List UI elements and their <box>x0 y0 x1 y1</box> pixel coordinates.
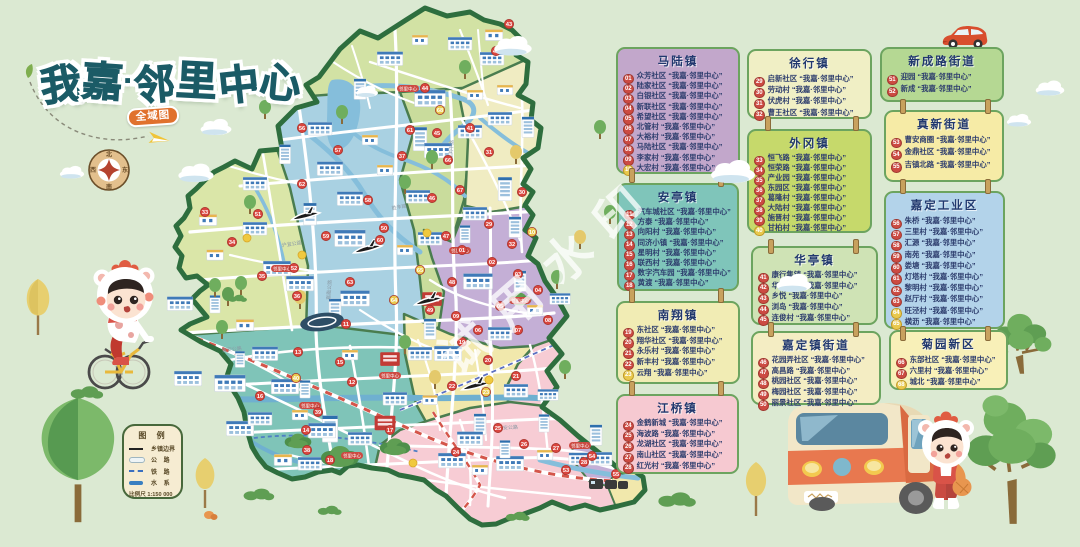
svg-text:57: 57 <box>335 148 341 154</box>
svg-text:14: 14 <box>303 428 310 434</box>
svg-text:东: 东 <box>122 166 128 174</box>
svg-text:67: 67 <box>457 188 463 194</box>
svg-text:45: 45 <box>434 131 440 137</box>
svg-text:41: 41 <box>467 126 473 132</box>
svg-text:40: 40 <box>293 376 299 382</box>
svg-text:04: 04 <box>535 288 542 294</box>
svg-text:19: 19 <box>459 340 465 346</box>
svg-text:36: 36 <box>294 294 300 300</box>
svg-text:22: 22 <box>449 384 455 390</box>
svg-text:03: 03 <box>515 272 521 278</box>
svg-text:邻里中心: 邻里中心 <box>343 452 361 459</box>
svg-text:56: 56 <box>299 126 305 132</box>
svg-text:64: 64 <box>391 298 398 304</box>
svg-text:25: 25 <box>495 426 501 432</box>
svg-text:32: 32 <box>509 242 515 248</box>
svg-text:26: 26 <box>521 442 527 448</box>
svg-text:34: 34 <box>229 240 236 246</box>
svg-text:12: 12 <box>349 380 355 386</box>
svg-text:10: 10 <box>529 230 535 236</box>
svg-text:09: 09 <box>453 314 459 320</box>
svg-text:51: 51 <box>255 212 261 218</box>
svg-text:62: 62 <box>299 182 305 188</box>
svg-text:11: 11 <box>343 322 349 328</box>
svg-text:08: 08 <box>545 318 551 324</box>
svg-text:35: 35 <box>259 274 265 280</box>
svg-text:38: 38 <box>304 448 310 454</box>
svg-text:16: 16 <box>257 394 263 400</box>
svg-text:50: 50 <box>381 226 387 232</box>
svg-text:48: 48 <box>449 280 455 286</box>
svg-text:07: 07 <box>515 328 521 334</box>
svg-text:33: 33 <box>202 210 208 216</box>
svg-text:29: 29 <box>486 222 492 228</box>
svg-text:27: 27 <box>553 446 559 452</box>
svg-text:52: 52 <box>291 266 297 272</box>
svg-text:66: 66 <box>445 158 451 164</box>
svg-text:17: 17 <box>387 428 393 434</box>
svg-text:68: 68 <box>437 108 443 114</box>
svg-text:13: 13 <box>295 350 301 356</box>
svg-text:53: 53 <box>563 468 569 474</box>
svg-text:18: 18 <box>327 458 333 464</box>
svg-text:61: 61 <box>407 128 413 134</box>
svg-text:西: 西 <box>90 166 96 174</box>
svg-text:23: 23 <box>483 390 489 396</box>
svg-text:37: 37 <box>399 154 405 160</box>
svg-text:01: 01 <box>459 248 465 254</box>
svg-text:31: 31 <box>486 150 492 156</box>
svg-text:47: 47 <box>443 234 449 240</box>
svg-text:58: 58 <box>365 198 371 204</box>
svg-text:44: 44 <box>422 86 429 92</box>
svg-text:北: 北 <box>106 151 112 159</box>
svg-text:30: 30 <box>519 190 525 196</box>
svg-text:63: 63 <box>347 280 353 286</box>
svg-text:49: 49 <box>427 308 433 314</box>
svg-text:邻里中心: 邻里中心 <box>399 85 417 92</box>
svg-text:28: 28 <box>581 460 587 466</box>
svg-text:46: 46 <box>429 196 435 202</box>
svg-text:60: 60 <box>377 238 383 244</box>
svg-text:邻里中心: 邻里中心 <box>511 297 529 304</box>
svg-text:邻里中心: 邻里中心 <box>273 265 291 272</box>
svg-text:21: 21 <box>513 374 519 380</box>
svg-text:65: 65 <box>417 268 423 274</box>
svg-text:20: 20 <box>485 358 491 364</box>
svg-text:06: 06 <box>475 328 481 334</box>
svg-text:43: 43 <box>506 22 512 28</box>
svg-text:南: 南 <box>106 183 112 191</box>
svg-text:15: 15 <box>337 360 343 366</box>
svg-text:邻里中心: 邻里中心 <box>381 372 399 379</box>
svg-text:54: 54 <box>589 454 596 460</box>
svg-text:39: 39 <box>315 410 321 416</box>
svg-text:24: 24 <box>453 450 460 456</box>
svg-text:02: 02 <box>489 260 495 266</box>
svg-text:59: 59 <box>323 234 329 240</box>
svg-text:55: 55 <box>613 472 619 478</box>
svg-text:05: 05 <box>497 304 503 310</box>
svg-text:邻里中心: 邻里中心 <box>571 442 589 449</box>
